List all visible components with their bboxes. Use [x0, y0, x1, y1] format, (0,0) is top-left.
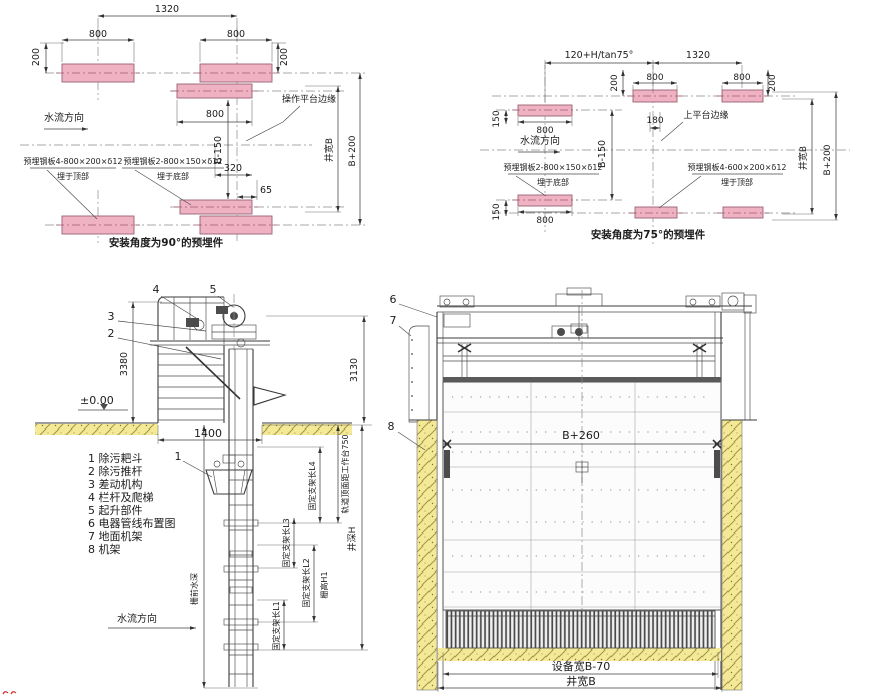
plate-top-spec: 预埋钢板4-600×200×δ12: [688, 162, 787, 172]
embedded-plates-75: [512, 90, 769, 218]
parts-list-item: 4 栏杆及爬梯: [88, 490, 154, 504]
parts-list-item: 5 起升部件: [88, 503, 143, 517]
parts-list: 1 除污耙斗 2 除污推杆 3 差动机构 4 栏杆及爬梯 5 起升部件 6 电器…: [88, 451, 176, 556]
callout-4: 4: [153, 283, 160, 296]
front-elevation: 6 7 8 B+260 设备宽B-70 井宽B: [388, 288, 758, 692]
callout-5: 5: [210, 283, 217, 296]
callout-2: 2: [108, 327, 115, 340]
dim-b200: B+200: [823, 144, 833, 175]
dim-200-left: 200: [610, 74, 620, 91]
dim-150-1: 150: [492, 110, 502, 127]
drawing-canvas: 1320 800 800 200 200 800 B-150 320 65 水流…: [0, 0, 876, 699]
plate-bottom-spec: 预埋钢板2-800×150×δ12: [124, 156, 223, 166]
dim-800-left: 800: [89, 29, 107, 40]
dim-800-top2: 800: [733, 73, 750, 83]
ground-hatch-right: [262, 424, 352, 435]
dim-3380: 3380: [119, 352, 130, 376]
dim-800-mid: 800: [206, 109, 224, 120]
side-elevation: 4 5 3 2 1 3380 3130 ±0.00 1400 1 除污耙斗 2 …: [35, 283, 372, 688]
bar-screen: [446, 611, 715, 648]
dim-800-top1: 800: [646, 73, 663, 83]
parts-list-item: 2 除污推杆: [88, 464, 143, 478]
dim-150-2: 150: [492, 203, 502, 220]
plate-bottom-spec: 预埋钢板2-800×150×δ12: [504, 162, 603, 172]
corner-watermark-mark: [3, 692, 16, 694]
dim-1400: 1400: [194, 427, 222, 440]
dim-320: 320: [224, 163, 242, 174]
plate-top-location: 埋于顶部: [57, 171, 89, 181]
dim-800-right: 800: [227, 29, 245, 40]
flow-direction-label: 水流方向: [44, 111, 84, 124]
callout-3: 3: [108, 310, 115, 323]
dim-65: 65: [260, 185, 272, 196]
upper-platform-edge-label: 上平台边缘: [683, 109, 728, 121]
parts-list-item: 1 除污耙斗: [88, 451, 143, 465]
plate-top-location: 埋于顶部: [721, 177, 753, 187]
well-width-label: 井宽B: [797, 146, 809, 170]
dim-800-side2: 800: [536, 216, 553, 226]
level-mark: ±0.00: [80, 394, 114, 407]
dim-3130: 3130: [349, 358, 360, 382]
label-screen-height: 栅高H1: [319, 571, 329, 598]
dim-equip-width: 设备宽B-70: [552, 659, 611, 673]
label-bracket-l4: 固定支架长L4: [307, 461, 317, 511]
flow-direction-label: 水流方向: [520, 134, 560, 147]
plate-bottom-location: 埋于底部: [537, 177, 569, 187]
parts-list-item: 6 电器管线布置图: [88, 516, 176, 530]
platform-edge-label: 操作平台边缘: [282, 93, 336, 105]
label-water-depth: 栅前水深: [189, 573, 199, 605]
label-rail-top: 轨道顶面距工作台750: [340, 434, 350, 513]
embedded-plates-90: [56, 64, 278, 234]
dim-well-width: 井宽B: [566, 674, 596, 688]
parts-list-item: 8 机架: [88, 542, 121, 556]
dim-1320: 1320: [686, 50, 710, 61]
well-width-label: 井宽B: [323, 138, 335, 162]
plate-bottom-location: 埋于底部: [157, 171, 189, 181]
plan-view-90: 1320 800 800 200 200 800 B-150 320 65 水流…: [20, 4, 368, 249]
rake-channel: [224, 349, 258, 687]
caption-90: 安装角度为90°的预埋件: [109, 236, 224, 249]
dim-180: 180: [646, 116, 663, 126]
label-bracket-l1: 固定支架长L1: [271, 601, 281, 651]
dim-200-left: 200: [31, 48, 42, 66]
engineering-drawing: 1320 800 800 200 200 800 B-150 320 65 水流…: [0, 0, 876, 699]
callout-7: 7: [390, 314, 397, 327]
flow-direction-label: 水流方向: [117, 612, 157, 625]
callout-1: 1: [175, 450, 182, 463]
dim-offset-75: 120+H/tan75°: [565, 50, 634, 61]
caption-75: 安装角度为75°的预埋件: [591, 228, 706, 241]
plate-top-spec: 预埋钢板4-800×200×δ12: [24, 156, 123, 166]
wall-hatch-left: [417, 420, 437, 690]
label-bracket-l3: 固定支架长L3: [281, 518, 291, 568]
label-bracket-l2: 固定支架长L2: [301, 558, 311, 608]
ground-hatch-left: [35, 424, 158, 435]
dim-800-side1: 800: [536, 126, 553, 136]
dim-200-right: 200: [279, 48, 290, 66]
hoist-bridge: [437, 288, 756, 343]
callout-8: 8: [388, 420, 395, 433]
plan-view-75: 120+H/tan75° 1320 800 800 200 200 180 上平…: [480, 50, 850, 245]
dim-b260: B+260: [562, 429, 600, 442]
parts-list-item: 3 差动机构: [88, 477, 143, 491]
callout-6: 6: [390, 293, 397, 306]
dim-1320: 1320: [155, 4, 179, 15]
dim-200-right: 200: [768, 74, 778, 91]
wall-hatch-right: [722, 420, 742, 690]
dim-b200: B+200: [348, 135, 358, 166]
parts-list-item: 7 地面机架: [88, 529, 143, 543]
label-well-depth: 井深H: [346, 527, 358, 552]
